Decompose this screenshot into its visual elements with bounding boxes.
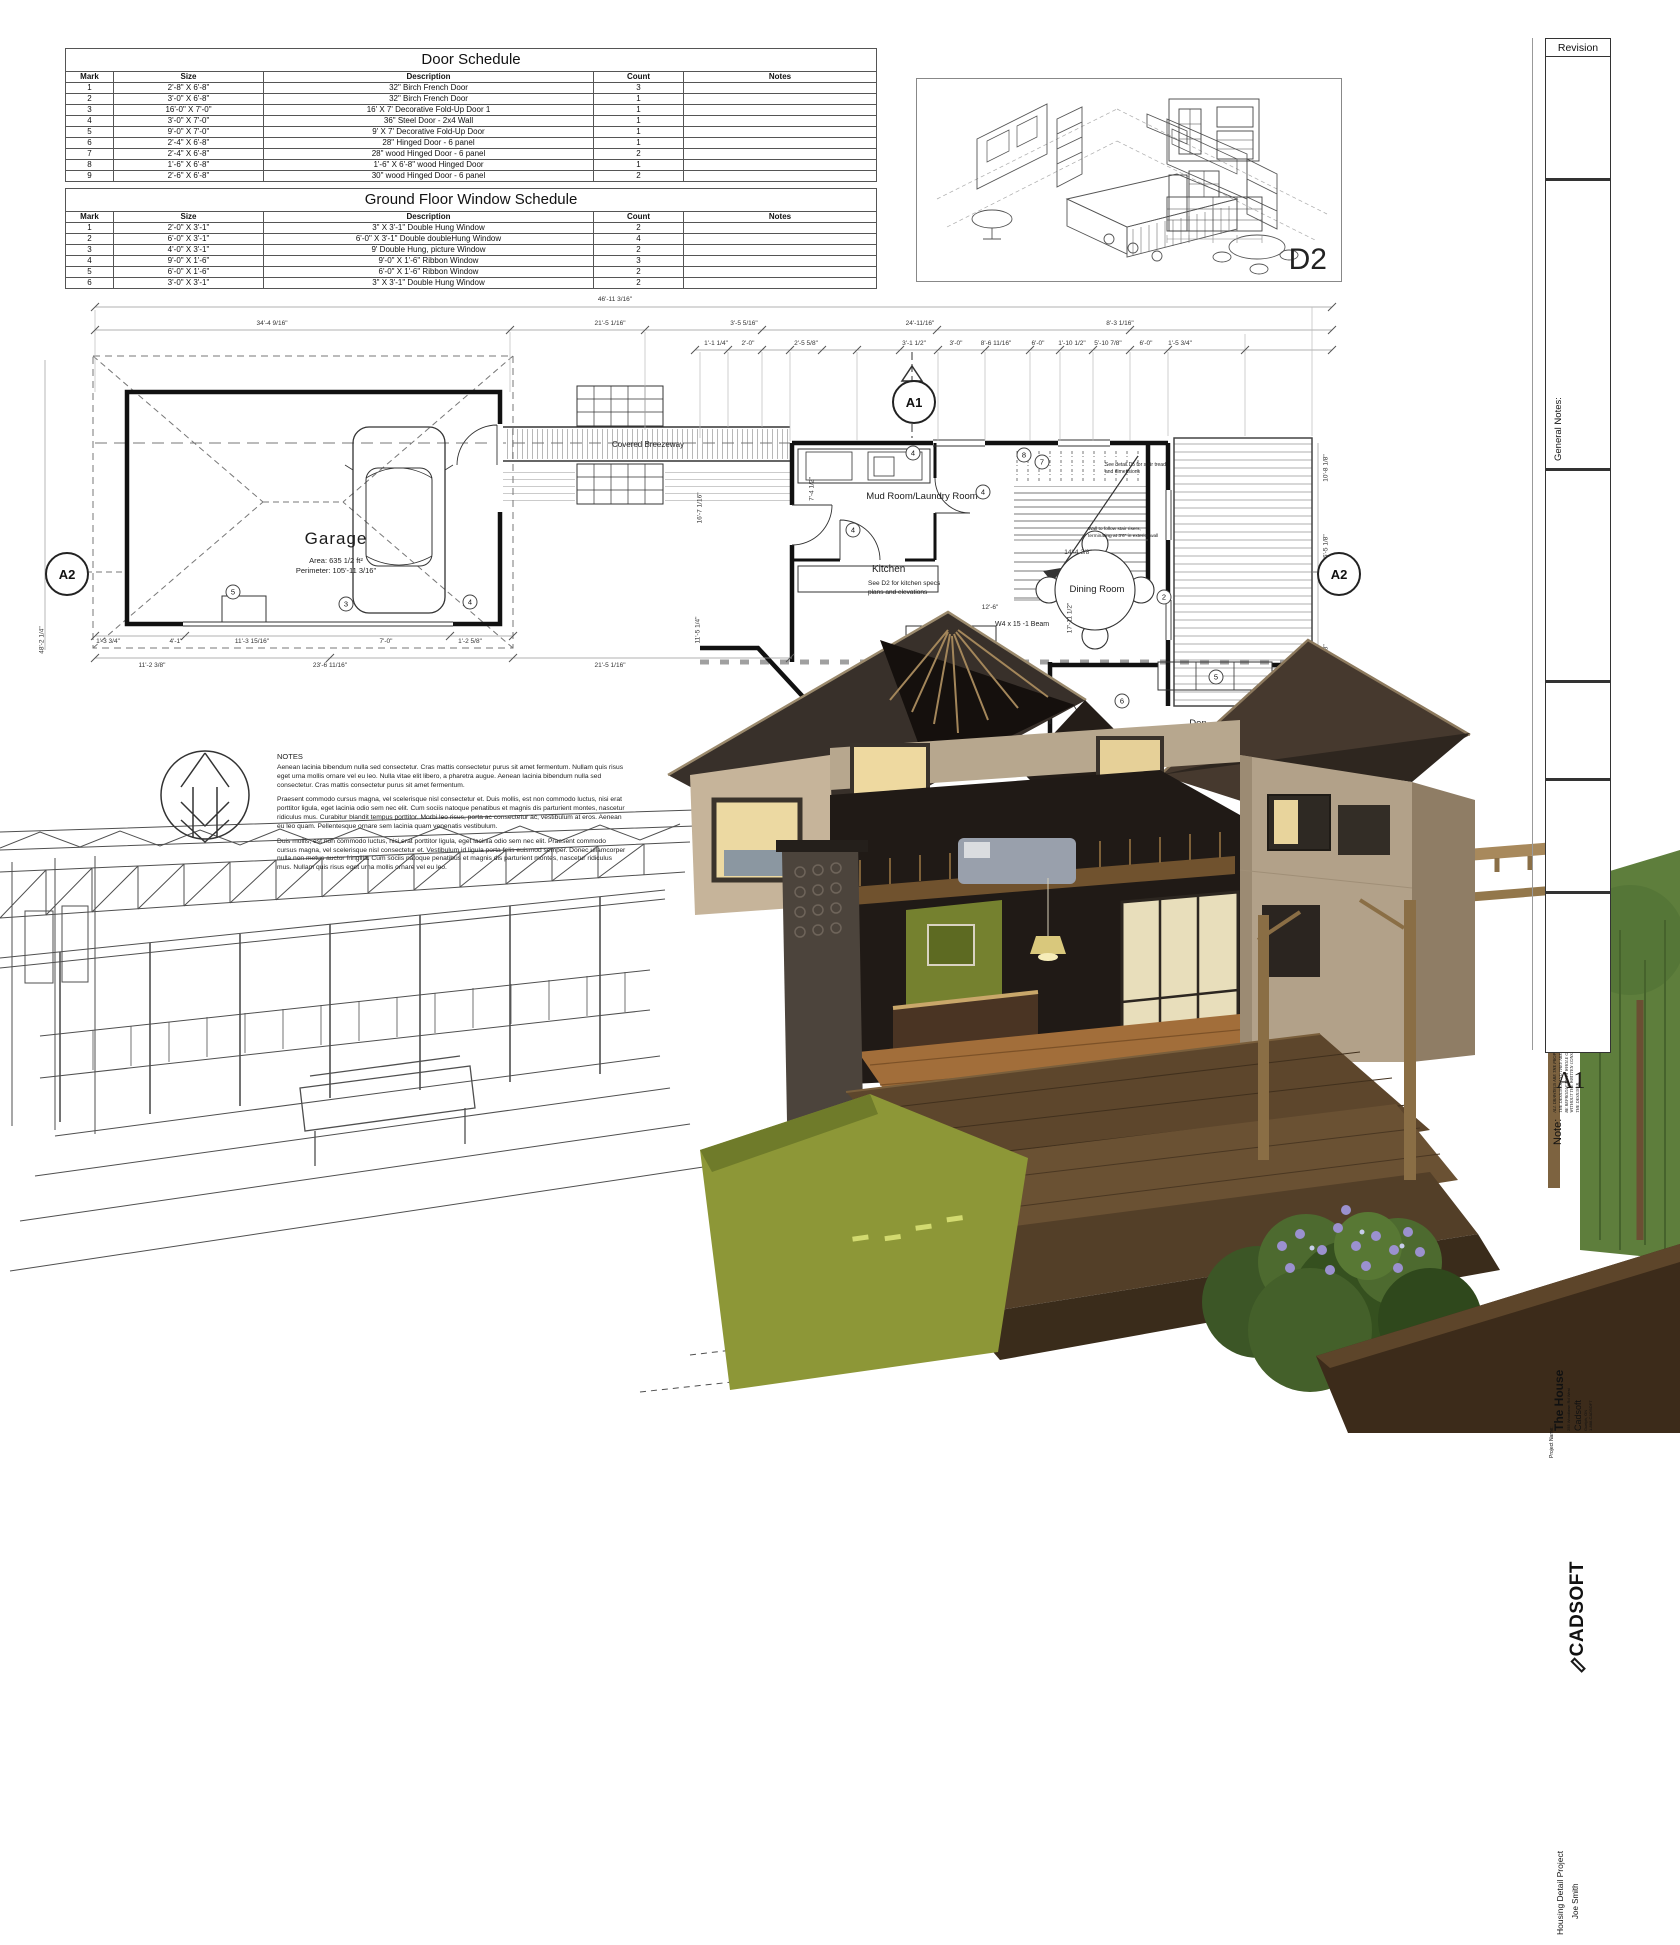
right-wing [1240, 755, 1475, 1062]
window-schedule-table: Ground Floor Window ScheduleMarkSizeDesc… [65, 188, 877, 289]
table-row: 316'-0" X 7'-0"16' X 7' Decorative Fold-… [66, 105, 877, 116]
kitchen-isometric-drawing [917, 79, 1341, 281]
kitchen-detail-viewport: D2 [916, 78, 1342, 282]
table-row: 72'-4" X 6'-8"28" wood Hinged Door - 6 p… [66, 149, 877, 160]
titleblock-note-section: Note: ALL DRAWINGS ARE THE PROPERTY OF T… [1545, 470, 1611, 682]
column-header: Notes [684, 72, 877, 83]
table-row: 63'-0" X 3'-1"3" X 3'-1" Double Hung Win… [66, 278, 877, 289]
company-name: Cadsoft [1573, 1365, 1583, 1431]
table-row: 34'-0" X 3'-1"9' Double Hung, picture Wi… [66, 245, 877, 256]
section-marker-a1: A1 [892, 380, 936, 424]
table-title: Door Schedule [66, 49, 877, 72]
titleblock-revision-section: Revision [1545, 38, 1611, 180]
general-notes-label: General Notes: [1547, 181, 1609, 469]
door-schedule-table: Door ScheduleMarkSizeDescriptionCountNot… [65, 48, 877, 182]
column-header: Description [264, 212, 594, 223]
table-row: 59'-0" X 7'-0"9' X 7' Decorative Fold-Up… [66, 127, 877, 138]
sheet-number: A1 [1556, 1068, 1585, 1095]
table-row: 81'-6" X 6'-8"1'-6" X 6'-8" wood Hinged … [66, 160, 877, 171]
column-header: Mark [66, 72, 114, 83]
table-row: 12'-8" X 6'-8"32" Birch French Door3 [66, 83, 877, 94]
column-header: Description [264, 72, 594, 83]
column-header: Size [114, 212, 264, 223]
titleblock-author-section: Housing Detail Project Joe Smith [1545, 893, 1611, 1053]
revision-header: Revision [1546, 39, 1610, 57]
table-row: 12'-0" X 3'-1"3" X 3'-1" Double Hung Win… [66, 223, 877, 234]
titleblock-logo-section: CADSOFT [1545, 780, 1611, 893]
project-title: Housing Detail Project [1555, 1787, 1565, 1935]
table-row: 49'-0" X 1'-6"9'-0" X 1'-6" Ribbon Windo… [66, 256, 877, 267]
project-name-label: Project Name: [1549, 1426, 1555, 1458]
table-row: 26'-0" X 3'-1"6'-0" X 3'-1" Double doubl… [66, 234, 877, 245]
section-marker-a2-left: A2 [45, 552, 89, 596]
cadsoft-logo-icon [1570, 1658, 1585, 1673]
sheet-frame-line [1532, 38, 1533, 1050]
table-title: Ground Floor Window Schedule [66, 189, 877, 212]
note-heading: Note: [1552, 1119, 1564, 1145]
company-phone: 1-888-CADSOFT [1588, 1365, 1593, 1431]
titleblock-project-section: Project Name: The House 255 Woodlawn Rd … [1545, 682, 1611, 780]
table-row: 23'-0" X 6'-8"32" Birch French Door1 [66, 94, 877, 105]
column-header: Count [594, 72, 684, 83]
section-marker-a2-right: A2 [1317, 552, 1361, 596]
table-row: 62'-4" X 6'-8"28" Hinged Door - 6 panel1 [66, 138, 877, 149]
author-name: Joe Smith [1571, 1787, 1580, 1919]
titleblock-general-notes-section: General Notes: [1545, 180, 1611, 470]
column-header: Mark [66, 212, 114, 223]
project-name: The House [1552, 1365, 1566, 1431]
column-header: Size [114, 72, 264, 83]
detail-callout-label: D2 [1289, 243, 1327, 277]
table-row: 43'-0" X 7'-0"36" Steel Door - 2x4 Wall1 [66, 116, 877, 127]
table-row: 92'-6" X 6'-8"30" wood Hinged Door - 6 p… [66, 171, 877, 182]
column-header: Count [594, 212, 684, 223]
project-address: 255 Woodlawn Rd West [1566, 1365, 1571, 1431]
green-lawn [700, 1094, 1028, 1390]
table-row: 56'-0" X 1'-6"6'-0" X 1'-6" Ribbon Windo… [66, 267, 877, 278]
cadsoft-logo-text: CADSOFT [1567, 1561, 1589, 1656]
column-header: Notes [684, 212, 877, 223]
